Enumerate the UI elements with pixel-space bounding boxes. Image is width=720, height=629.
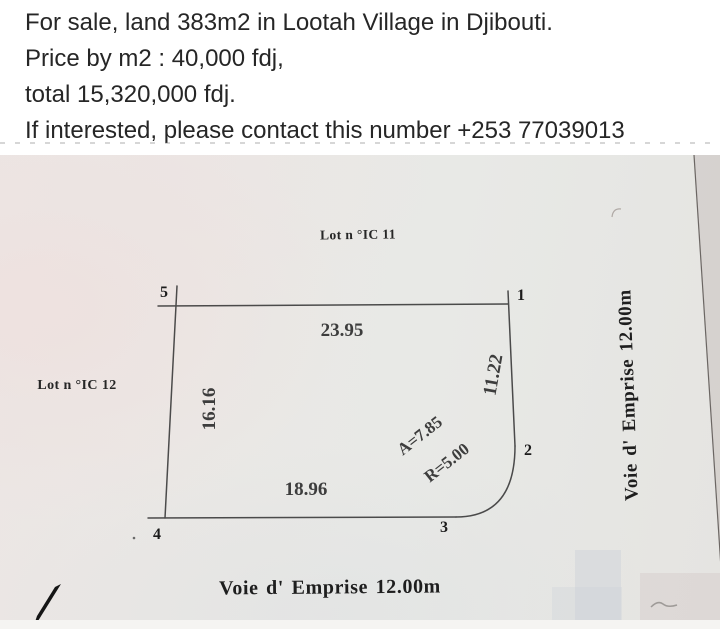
listing-line-2: Price by m2 : 40,000 fdj, bbox=[0, 41, 720, 77]
neighbor-lot-label-left: Lot n °IC 12 bbox=[37, 378, 116, 394]
plot-top-edge bbox=[158, 304, 508, 306]
corner-label-3: 3 bbox=[440, 519, 448, 537]
survey-point-dot bbox=[133, 537, 136, 540]
corner-label-1: 1 bbox=[517, 287, 525, 305]
plot-right-edge bbox=[508, 291, 515, 446]
survey-plan-photo: Lot n °IC 11 Lot n °IC 12 5 1 2 3 4 23.9… bbox=[0, 155, 720, 629]
neighbor-lot-label-top: Lot n °IC 11 bbox=[320, 226, 396, 243]
listing-line-1: For sale, land 383m2 in Lootah Village i… bbox=[0, 5, 720, 41]
dimension-top: 23.95 bbox=[321, 320, 364, 342]
listing-screenshot: For sale, land 383m2 in Lootah Village i… bbox=[0, 0, 720, 629]
scan-shadow-block-right bbox=[640, 573, 720, 620]
plot-left-edge bbox=[165, 286, 177, 518]
corner-label-2: 2 bbox=[524, 442, 532, 460]
corner-label-4: 4 bbox=[153, 526, 161, 544]
scan-bottom-strip bbox=[0, 620, 720, 629]
dimension-bottom: 18.96 bbox=[285, 479, 328, 501]
scan-shadow-block-blue-2 bbox=[552, 587, 622, 620]
plot-bottom-edge bbox=[148, 517, 456, 518]
corner-label-5: 5 bbox=[160, 284, 168, 302]
listing-text-block: For sale, land 383m2 in Lootah Village i… bbox=[0, 0, 720, 155]
listing-line-3: total 15,320,000 fdj. bbox=[0, 77, 720, 113]
road-label-bottom: Voie d' Emprise 12.00m bbox=[219, 576, 441, 601]
photo-top-edge-artifact bbox=[0, 142, 720, 144]
dimension-left: 16.16 bbox=[199, 388, 221, 431]
small-curl-mark bbox=[612, 209, 621, 217]
